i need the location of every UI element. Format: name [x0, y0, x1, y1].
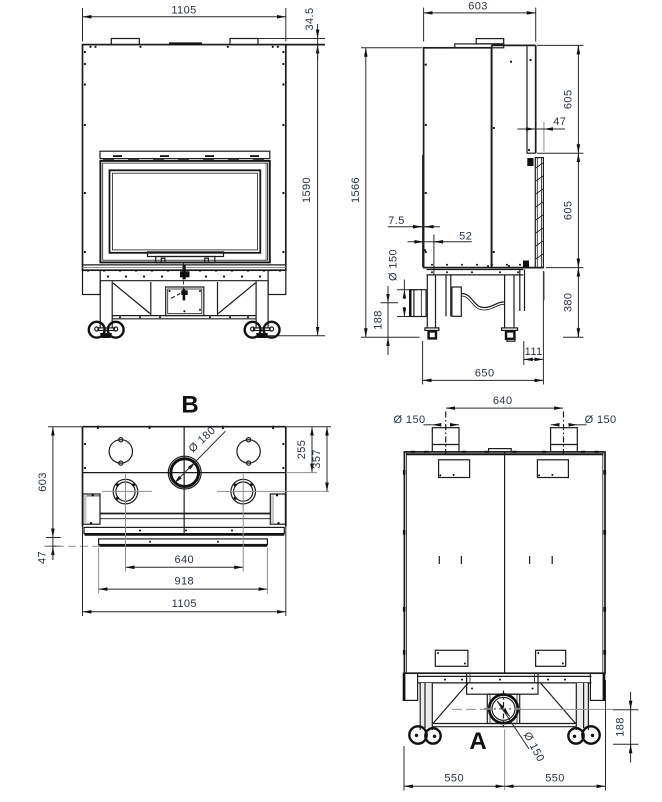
- svg-text:640: 640: [175, 554, 195, 566]
- svg-text:550: 550: [444, 773, 464, 785]
- svg-text:650: 650: [475, 367, 495, 379]
- svg-text:47: 47: [553, 116, 566, 128]
- svg-text:640: 640: [493, 395, 513, 407]
- svg-text:188: 188: [373, 310, 385, 330]
- svg-text:111: 111: [525, 346, 543, 358]
- svg-text:34.5: 34.5: [304, 7, 316, 30]
- svg-text:380: 380: [563, 293, 575, 313]
- svg-text:Ø 150: Ø 150: [388, 249, 400, 281]
- svg-text:605: 605: [563, 90, 575, 110]
- svg-text:Ø 150: Ø 150: [585, 414, 617, 426]
- svg-text:255: 255: [296, 440, 308, 460]
- svg-text:Ø 150: Ø 150: [394, 414, 426, 426]
- svg-text:1105: 1105: [172, 598, 197, 610]
- svg-text:1590: 1590: [301, 177, 313, 203]
- svg-text:550: 550: [545, 773, 565, 785]
- svg-text:A: A: [469, 728, 486, 755]
- svg-text:188: 188: [614, 717, 626, 737]
- svg-text:7.5: 7.5: [388, 215, 405, 227]
- svg-text:1566: 1566: [350, 177, 362, 203]
- svg-text:603: 603: [468, 1, 488, 13]
- svg-text:603: 603: [37, 472, 49, 492]
- svg-text:52: 52: [459, 231, 472, 243]
- svg-text:357: 357: [311, 449, 323, 469]
- svg-text:B: B: [181, 392, 198, 419]
- svg-text:1105: 1105: [171, 5, 196, 17]
- svg-text:605: 605: [563, 201, 575, 221]
- svg-text:918: 918: [175, 576, 195, 588]
- svg-text:47: 47: [37, 551, 49, 564]
